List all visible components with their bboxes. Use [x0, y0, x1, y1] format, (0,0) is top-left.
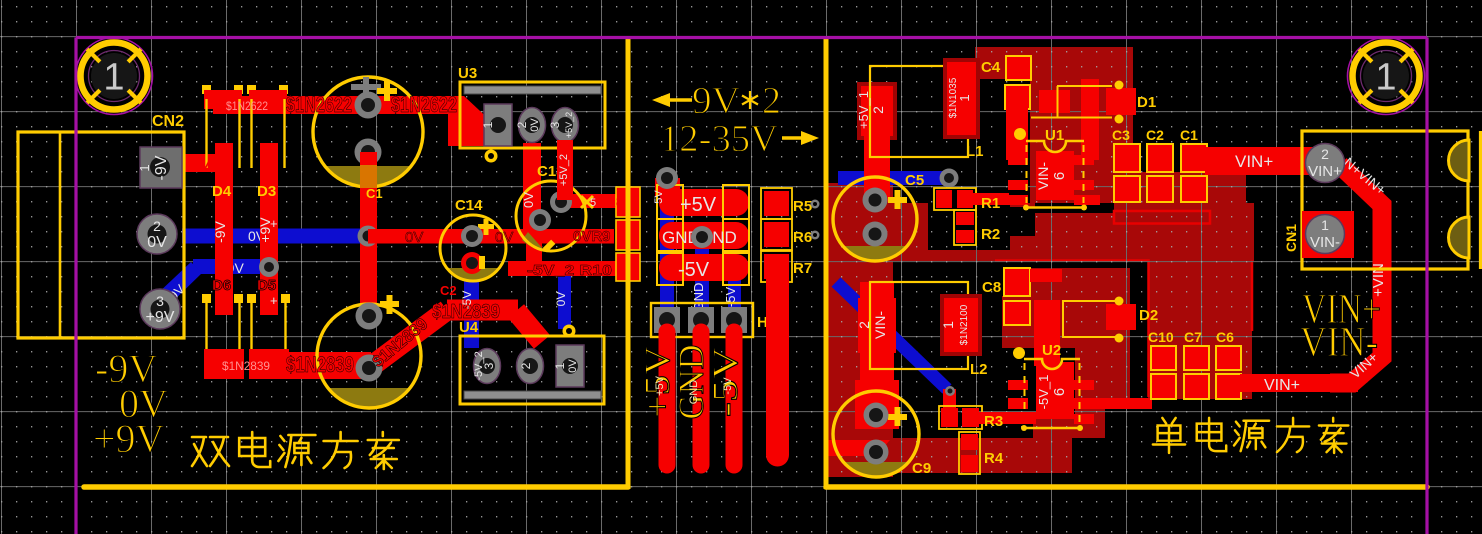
- svg-text:C3: C3: [1112, 127, 1130, 143]
- svg-text:1: 1: [957, 94, 972, 101]
- svg-text:C10: C10: [1148, 329, 1174, 345]
- svg-text:2: 2: [1321, 146, 1329, 162]
- svg-text:C6: C6: [1216, 329, 1234, 345]
- svg-text:D5: D5: [257, 277, 276, 294]
- svg-text:0V: 0V: [147, 234, 167, 251]
- svg-text:+5V_1: +5V_1: [856, 91, 871, 129]
- svg-text:+9V: +9V: [93, 416, 165, 461]
- svg-text:3: 3: [548, 121, 562, 128]
- svg-text:1: 1: [481, 121, 495, 128]
- svg-text:C5: C5: [905, 172, 924, 189]
- svg-text:R5: R5: [793, 198, 812, 215]
- svg-text:1: 1: [137, 164, 152, 171]
- svg-text:$1N2622: $1N2622: [391, 92, 457, 117]
- svg-text:0V: 0V: [529, 118, 541, 132]
- svg-text:1: 1: [1321, 217, 1329, 233]
- svg-text:C8: C8: [982, 279, 1001, 296]
- svg-text:VIN+: VIN+: [1235, 152, 1273, 171]
- svg-text:1: 1: [1375, 57, 1396, 99]
- svg-text:C1: C1: [366, 186, 383, 201]
- svg-text:5V: 5V: [653, 190, 665, 204]
- svg-text:D6: D6: [212, 277, 231, 294]
- svg-text:C1: C1: [1180, 127, 1198, 143]
- svg-text:6: 6: [1051, 172, 1068, 180]
- svg-text:2: 2: [856, 321, 872, 329]
- svg-text:2: 2: [515, 121, 529, 128]
- svg-text:$1N2839: $1N2839: [222, 359, 270, 373]
- svg-text:+: +: [270, 293, 278, 308]
- svg-text:-5V: -5V: [460, 291, 474, 310]
- svg-text:U3: U3: [458, 65, 477, 82]
- svg-text:C4: C4: [981, 59, 1001, 76]
- svg-text:-9V: -9V: [153, 155, 170, 180]
- svg-text:D3: D3: [257, 183, 276, 200]
- svg-text:D1: D1: [1137, 94, 1156, 111]
- svg-text:2: 2: [519, 362, 533, 369]
- svg-text:VIN-: VIN-: [1035, 162, 1051, 190]
- svg-text:-9V: -9V: [212, 220, 228, 242]
- svg-text:9V: 9V: [692, 80, 741, 122]
- svg-text:0VR9: 0VR9: [573, 228, 611, 245]
- svg-text:R4: R4: [984, 450, 1004, 467]
- svg-text:R2: R2: [981, 226, 1000, 243]
- svg-text:CN2: CN2: [152, 113, 184, 130]
- svg-text:U2: U2: [1042, 342, 1061, 359]
- svg-text:CN1: CN1: [1283, 224, 1299, 252]
- svg-text:$1N2100: $1N2100: [959, 304, 970, 345]
- svg-text:C9: C9: [912, 460, 931, 477]
- svg-text:U1: U1: [1045, 127, 1064, 144]
- svg-text:-5V: -5V: [722, 377, 734, 395]
- svg-text:+5V: +5V: [680, 194, 717, 216]
- svg-text:-5V_2 R10: -5V_2 R10: [527, 262, 612, 279]
- svg-text:5: 5: [590, 197, 596, 209]
- svg-text:C14: C14: [455, 197, 483, 214]
- svg-text:+: +: [270, 216, 278, 231]
- svg-text:R3: R3: [984, 413, 1003, 430]
- svg-text:$1N2839: $1N2839: [286, 352, 354, 377]
- svg-text:3: 3: [482, 362, 496, 369]
- svg-text:3: 3: [156, 293, 164, 309]
- svg-text:6: 6: [1051, 388, 1068, 396]
- svg-text:VIN+: VIN+: [1308, 163, 1342, 180]
- svg-text:C2: C2: [440, 283, 457, 298]
- svg-text:R8: R8: [605, 194, 624, 211]
- svg-text:R6: R6: [793, 229, 812, 246]
- svg-text:+9V: +9V: [146, 309, 175, 326]
- svg-text:D4: D4: [212, 183, 232, 200]
- svg-text:0V: 0V: [521, 192, 536, 208]
- svg-text:VIN-: VIN-: [872, 311, 888, 339]
- svg-text:0V: 0V: [405, 229, 423, 246]
- svg-text:+5V_2: +5V_2: [564, 112, 574, 138]
- svg-text:R1: R1: [981, 195, 1000, 212]
- svg-text:VIN-: VIN-: [1310, 234, 1340, 251]
- svg-text:$1N2622: $1N2622: [226, 99, 268, 113]
- svg-text:2: 2: [762, 80, 781, 122]
- svg-text:2: 2: [153, 218, 161, 234]
- svg-text:1: 1: [103, 57, 124, 99]
- svg-text:+5V: +5V: [654, 375, 666, 396]
- svg-text:$1N2622: $1N2622: [286, 92, 352, 117]
- svg-text:C2: C2: [1146, 127, 1164, 143]
- svg-text:VIN-: VIN-: [1300, 320, 1378, 366]
- svg-text:0V: 0V: [554, 292, 568, 307]
- svg-text:L1: L1: [966, 143, 984, 160]
- svg-text:+5V_2: +5V_2: [558, 154, 570, 186]
- svg-text:D2: D2: [1139, 307, 1158, 324]
- svg-text:C7: C7: [1184, 329, 1202, 345]
- svg-text:1: 1: [553, 362, 567, 369]
- svg-text:-9V: -9V: [181, 155, 212, 172]
- svg-text:-5V: -5V: [678, 259, 710, 281]
- svg-text:12-35V: 12-35V: [660, 118, 779, 160]
- svg-text:0V: 0V: [567, 359, 579, 373]
- svg-text:GND: GND: [688, 380, 700, 405]
- svg-text:VIN+: VIN+: [1264, 377, 1300, 394]
- svg-text:-5V_1: -5V_1: [1036, 375, 1051, 410]
- svg-text:0V: 0V: [495, 229, 513, 246]
- svg-text:1: 1: [940, 321, 956, 329]
- svg-text:2: 2: [870, 106, 886, 114]
- svg-text:R7: R7: [793, 260, 812, 277]
- svg-text:L2: L2: [970, 361, 988, 378]
